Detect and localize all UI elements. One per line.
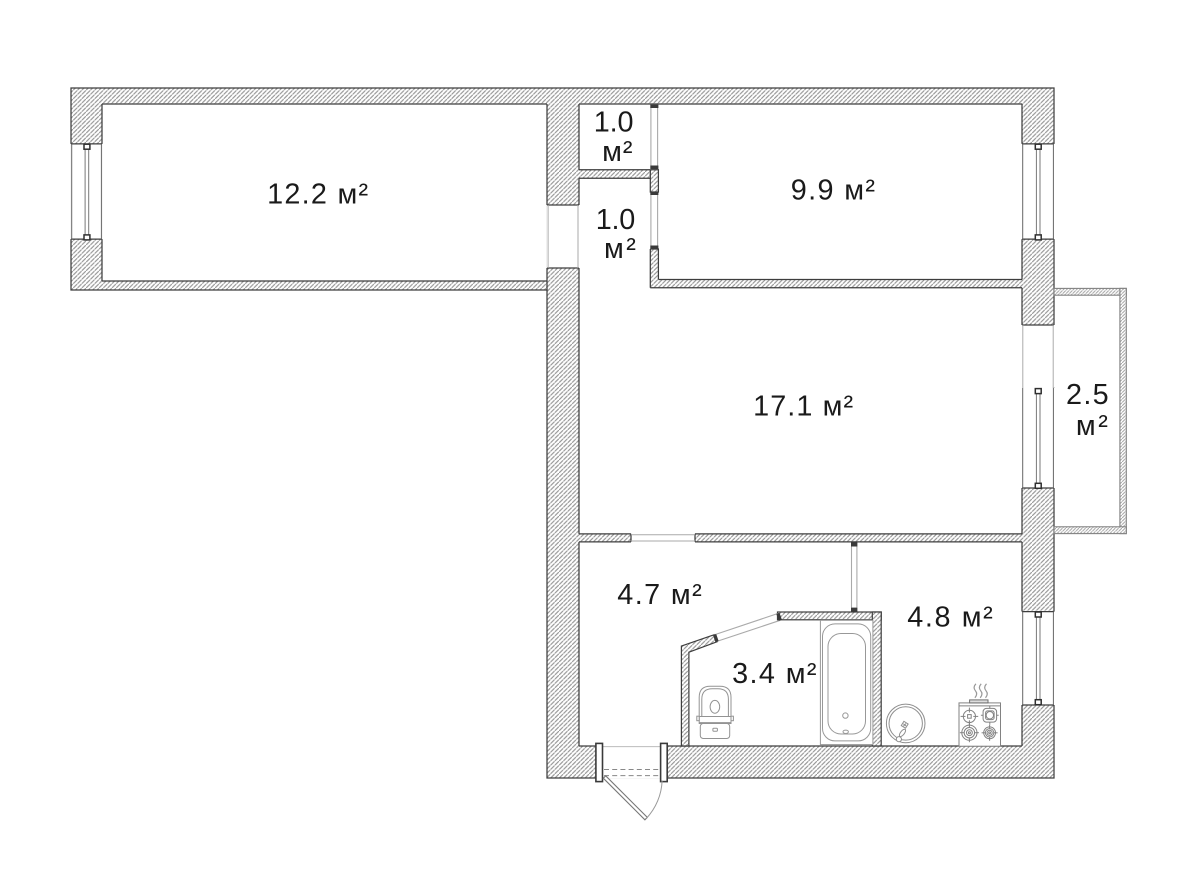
svg-text:4.7 м²: 4.7 м²	[617, 579, 702, 611]
svg-text:1.0: 1.0	[596, 204, 636, 236]
svg-text:9.9 м²: 9.9 м²	[791, 175, 876, 207]
svg-text:2.5: 2.5	[1066, 379, 1109, 411]
svg-text:4.8 м²: 4.8 м²	[907, 602, 993, 634]
svg-text:3.4 м²: 3.4 м²	[732, 658, 817, 690]
svg-text:12.2 м²: 12.2 м²	[267, 178, 368, 210]
svg-text:м²: м²	[604, 233, 636, 265]
svg-text:1.0: 1.0	[594, 107, 634, 139]
svg-text:м²: м²	[1076, 410, 1108, 442]
svg-text:17.1 м²: 17.1 м²	[753, 391, 853, 423]
svg-text:м²: м²	[602, 136, 633, 168]
